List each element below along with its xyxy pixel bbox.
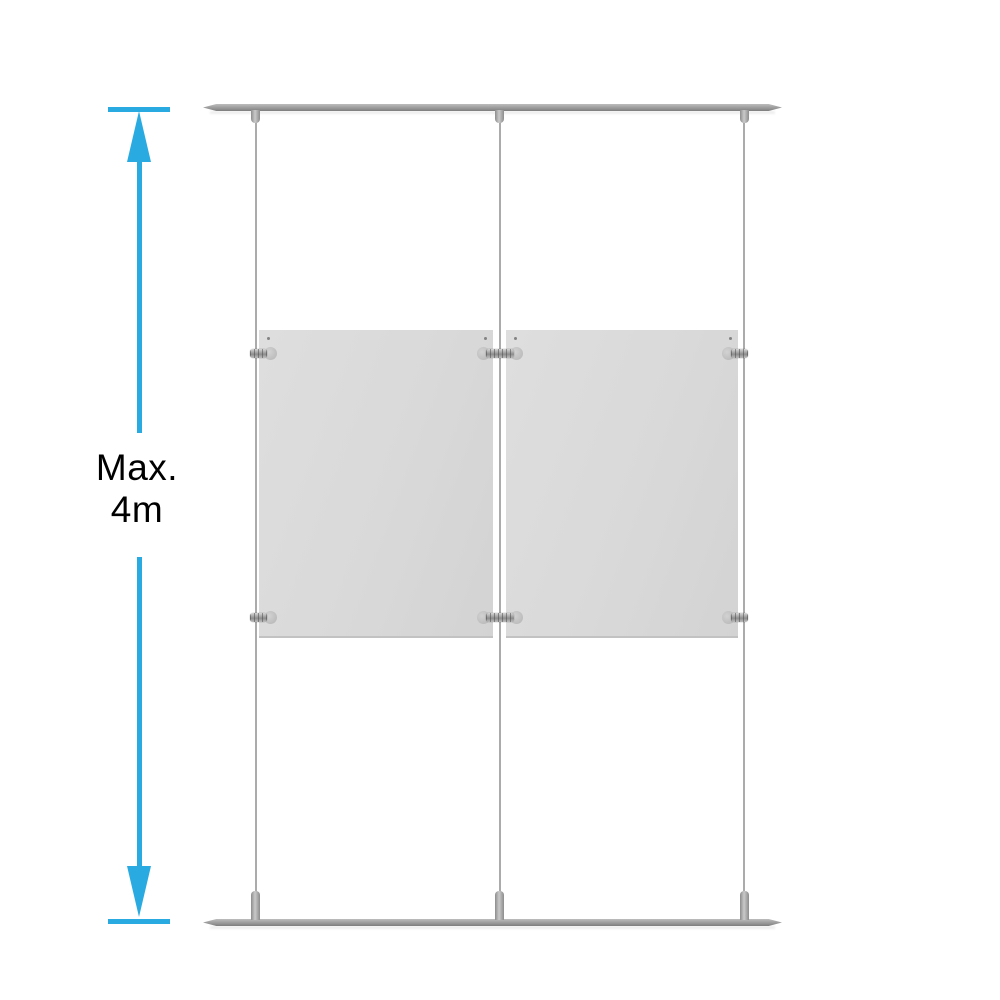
dimension-line-upper <box>137 158 142 433</box>
arrow-down-icon <box>127 866 151 917</box>
arrow-up-icon <box>127 111 151 162</box>
dimension-line-lower <box>137 557 142 867</box>
top-rail <box>203 104 782 111</box>
bottom-rail-shadow <box>210 926 775 929</box>
cable-clamp-top-left <box>250 349 267 358</box>
suspension-cable-left <box>255 112 257 892</box>
cable-clamp-bottom-center <box>486 613 514 622</box>
panel-screw-dot <box>484 337 487 340</box>
dimension-label-line1: Max. <box>57 447 217 489</box>
suspension-cable-center <box>499 112 501 892</box>
dimension-extent-line-bottom <box>108 919 170 924</box>
bottom-rail <box>203 919 782 926</box>
cable-clamp-top-center <box>486 349 514 358</box>
cable-clamp-bottom-right <box>731 613 748 622</box>
poster-panel-left <box>259 330 493 638</box>
panel-screw-dot <box>514 337 517 340</box>
bottom-cable-fitting-right <box>740 891 749 920</box>
poster-panel-right <box>506 330 738 638</box>
top-cable-fitting-center <box>495 110 504 123</box>
suspension-cable-right <box>743 112 745 892</box>
cable-display-kit-render: Max. 4m <box>0 0 1000 1000</box>
panel-screw-dot <box>729 337 732 340</box>
top-cable-fitting-left <box>251 110 260 123</box>
panel-screw-dot <box>267 337 270 340</box>
cable-clamp-bottom-left <box>250 613 267 622</box>
bottom-cable-fitting-left <box>251 891 260 920</box>
top-rail-shadow <box>210 111 775 114</box>
top-cable-fitting-right <box>740 110 749 123</box>
dimension-label: Max. 4m <box>57 447 217 531</box>
bottom-cable-fitting-center <box>495 891 504 920</box>
dimension-label-line2: 4m <box>57 489 217 531</box>
cable-clamp-top-right <box>731 349 748 358</box>
